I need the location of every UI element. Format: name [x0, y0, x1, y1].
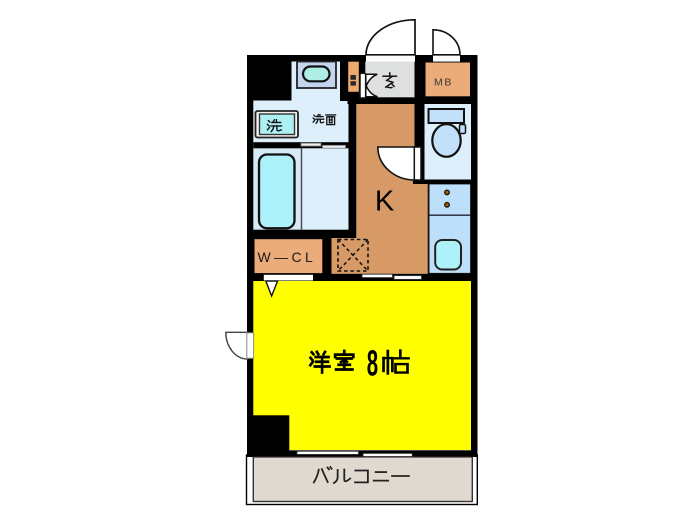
- svg-text:MB: MB: [434, 77, 453, 89]
- svg-text:8: 8: [367, 344, 378, 385]
- svg-text:W—CL: W—CL: [258, 249, 317, 265]
- svg-text:K: K: [375, 186, 395, 218]
